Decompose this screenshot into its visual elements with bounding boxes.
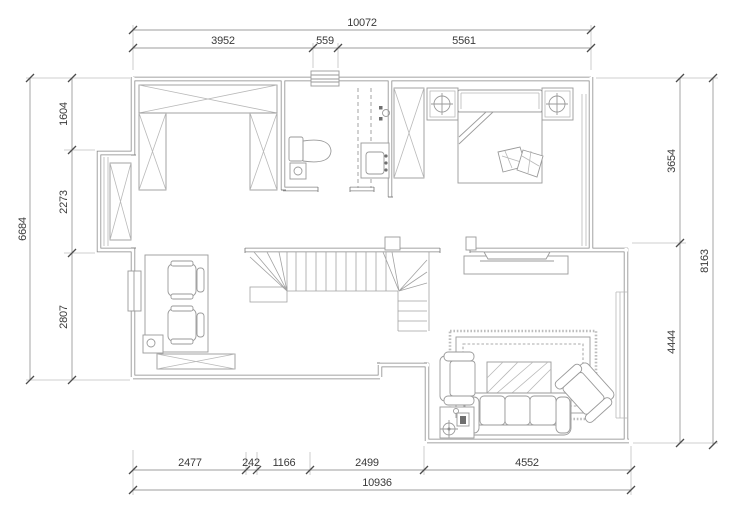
floor-drain-icon — [290, 163, 306, 179]
closet-wardrobe — [139, 85, 277, 190]
dim-top-seg-1: 559 — [316, 35, 334, 47]
extension-lines — [26, 25, 718, 495]
dim-left-seg-0: 1604 — [58, 102, 70, 126]
wall-pier — [385, 237, 400, 250]
sofa-seat — [505, 396, 530, 425]
vanity-sink-icon — [361, 143, 389, 178]
dim-bottom-seg-1: 242 — [242, 457, 260, 469]
dim-left-seg-2: 2807 — [58, 305, 70, 329]
dimension-labels: 10072 3952 559 5561 6684 1604 2273 2807 … — [17, 17, 711, 489]
dim-right-seg-0: 3654 — [666, 149, 678, 173]
bedroom-wardrobe — [394, 88, 424, 178]
nightstand-left — [427, 88, 458, 120]
floor-plan-svg: 10072 3952 559 5561 6684 1604 2273 2807 … — [0, 0, 740, 520]
sofa-armrest-right — [556, 397, 570, 433]
double-bed — [458, 90, 543, 183]
stair-winder-right — [383, 252, 427, 291]
side-table — [440, 407, 474, 438]
desk-chair-1 — [168, 261, 204, 299]
dim-top-seg-0: 3952 — [211, 35, 235, 47]
bedroom — [394, 88, 573, 183]
tv-icon — [484, 252, 550, 259]
dim-top-total: 10072 — [347, 17, 377, 29]
toilet-icon — [289, 137, 331, 162]
corner-unit — [143, 335, 163, 353]
sideboard-cabinet — [157, 354, 235, 369]
sofa-seat — [480, 396, 505, 425]
stair-lower-run — [398, 252, 429, 331]
stair-winder-left — [250, 252, 287, 291]
stair-landing — [250, 287, 287, 302]
dim-top-seg-2: 5561 — [452, 35, 476, 47]
left-wall-radiator — [128, 271, 141, 311]
nightstand-right — [542, 88, 573, 120]
armchair-left — [440, 352, 475, 405]
floor-plan-canvas: 10072 3952 559 5561 6684 1604 2273 2807 … — [0, 0, 740, 520]
tv-console — [464, 252, 568, 274]
dim-bottom-seg-0: 2477 — [178, 457, 202, 469]
dim-left-total: 6684 — [17, 217, 29, 241]
dimension-ticks — [26, 26, 717, 494]
bathroom — [289, 88, 390, 188]
desk-chair-2 — [168, 306, 204, 344]
dimension-lines: 10072 3952 559 5561 6684 1604 2273 2807 … — [17, 17, 717, 494]
dim-left-seg-1: 2273 — [58, 190, 70, 214]
door-jamb-pier — [466, 237, 476, 250]
dim-right-total: 8163 — [699, 249, 711, 273]
dim-bottom-seg-2: 1166 — [273, 457, 296, 469]
dim-bottom-seg-4: 4552 — [515, 457, 539, 469]
stairs — [250, 252, 429, 331]
bay-window-glazing — [110, 163, 131, 240]
dim-bottom-seg-3: 2499 — [355, 457, 379, 469]
sofa — [464, 393, 571, 435]
study-room — [143, 255, 235, 369]
bay-window — [104, 157, 131, 246]
flue-shaft — [311, 71, 339, 86]
dim-bottom-total: 10936 — [362, 477, 392, 489]
dim-right-seg-1: 4444 — [666, 330, 678, 354]
sofa-seat — [530, 396, 556, 425]
living-room — [440, 252, 619, 438]
coffee-table — [487, 362, 551, 393]
bedroom-right-window — [582, 94, 586, 246]
